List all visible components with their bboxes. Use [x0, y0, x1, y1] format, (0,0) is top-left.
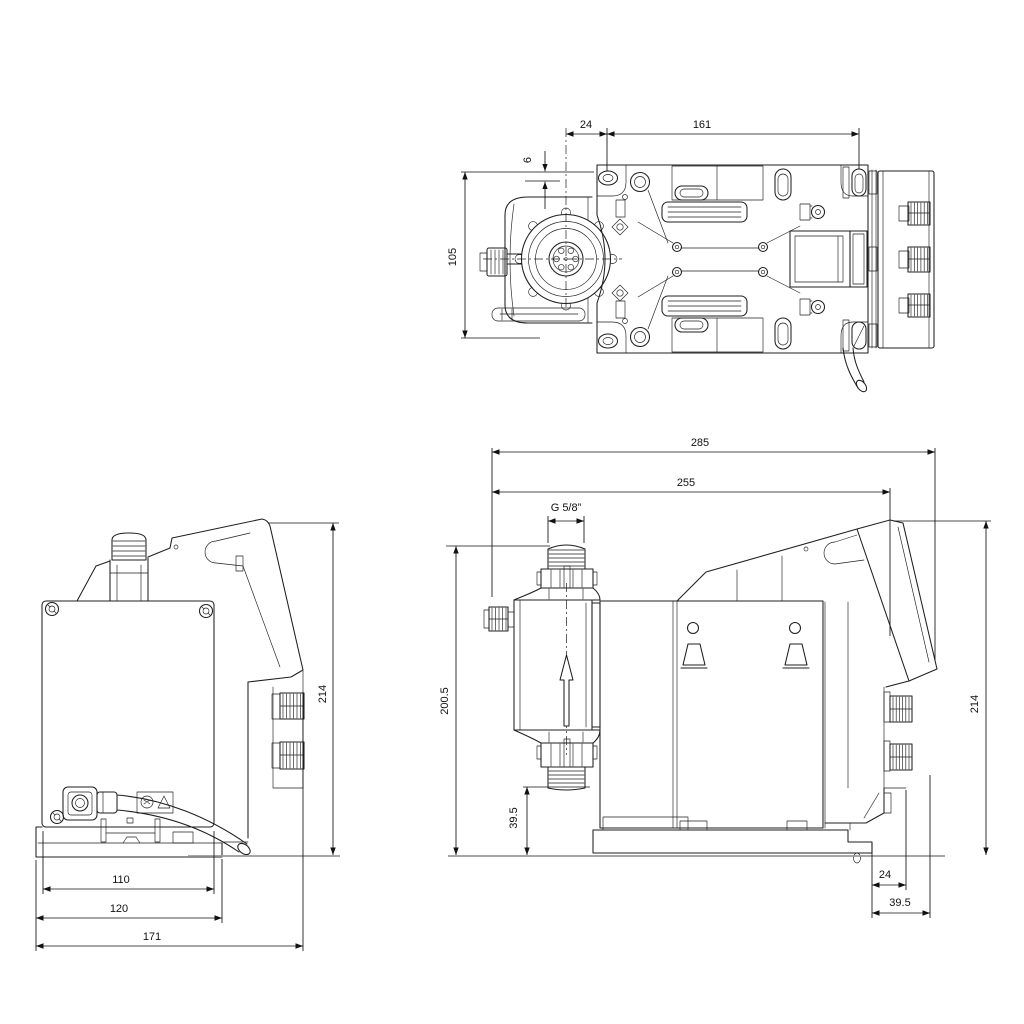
rear-panel: [825, 602, 912, 830]
dim-thread-label: G 5/8”: [551, 502, 582, 514]
dim-171-label: 171: [143, 931, 161, 943]
control-cube-top: [869, 170, 934, 348]
connection-knob-2: [899, 247, 930, 272]
dim-285-label: 285: [691, 437, 709, 449]
motor-mount-block: [790, 231, 850, 287]
flow-direction-arrow: [560, 655, 573, 726]
dim-24-top-label: 24: [580, 119, 592, 131]
suction-valve: [514, 730, 600, 790]
power-cable-top: [843, 348, 869, 394]
mounting-slot-top-left: [599, 171, 618, 185]
dim-120-label: 120: [110, 903, 128, 915]
hose-knob-side-2: [884, 741, 912, 771]
connection-knob-1: [899, 202, 930, 225]
base-back: [36, 827, 248, 857]
dim-161-label: 161: [693, 119, 711, 131]
mounting-plate: [597, 165, 868, 353]
control-panel-side: [677, 520, 937, 687]
control-panel-back: [77, 519, 304, 838]
dim-214-side-label: 214: [969, 695, 981, 713]
pump-dimension-drawing: 24 161 6 105: [0, 0, 1024, 1024]
hose-knob-1: [272, 693, 304, 719]
wall-bracket-foot: [825, 788, 891, 830]
warning-label: [137, 792, 173, 813]
top-view: 24 161 6 105: [447, 119, 934, 394]
back-view: 214 110 120 171: [36, 519, 340, 951]
dim-200-5-label: 200.5: [439, 687, 451, 715]
dim-255-label: 255: [677, 477, 695, 489]
side-view: 285 255 G 5/8” 200.5 39.5 214 24 39.5: [439, 437, 991, 918]
connection-knob-3: [899, 294, 930, 317]
back-view-dimensions: 214 110 120 171: [36, 523, 339, 951]
mounting-slot-bottom-left: [599, 334, 618, 348]
mounting-slot-top-right: [852, 169, 866, 196]
dim-110-label: 110: [112, 874, 130, 886]
dim-39-5-right-label: 39.5: [889, 897, 910, 909]
discharge-valve: [514, 545, 600, 600]
drawing-canvas: 24 161 6 105: [0, 0, 1024, 1024]
dim-24-side-label: 24: [879, 869, 891, 881]
dim-105-label: 105: [447, 248, 459, 266]
pump-body-side: [600, 601, 823, 828]
dim-214-back-label: 214: [317, 685, 329, 703]
cable-gland: [63, 787, 117, 820]
pump-head-side: [484, 600, 600, 730]
dim-6-label: 6: [522, 157, 534, 163]
plate-screws: [46, 603, 213, 824]
dim-39-5-left-label: 39.5: [508, 807, 520, 828]
back-plate: [42, 601, 214, 827]
hose-knob-2: [272, 742, 304, 769]
top-view-dimensions: 24 161 6 105: [447, 119, 859, 338]
hose-knob-side-1: [884, 692, 912, 722]
vent-plug: [110, 533, 148, 601]
rail-clamp: [101, 818, 160, 842]
